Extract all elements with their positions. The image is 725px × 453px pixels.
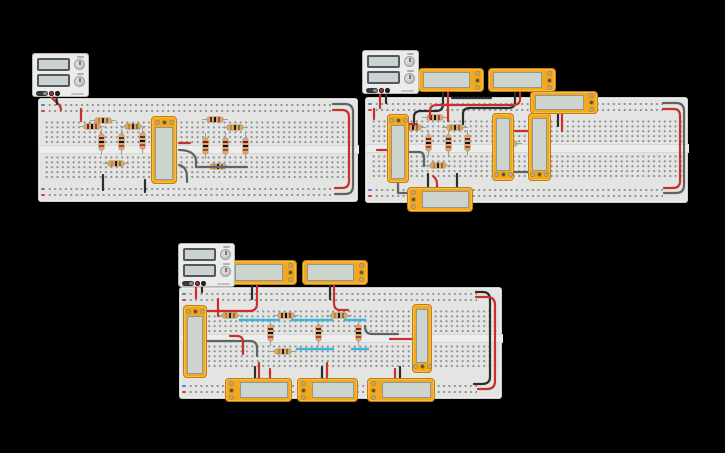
- psu-voltage-knob-label: [223, 246, 230, 248]
- psu-voltage-knob-label: [407, 53, 414, 55]
- psu-current-display: [37, 74, 70, 87]
- module-pin: [288, 270, 293, 275]
- module-pin: [301, 395, 306, 400]
- wire-gray[interactable]: [179, 150, 247, 167]
- module-pin: [186, 309, 191, 314]
- module-pin: [530, 172, 535, 177]
- module-pin: [413, 364, 418, 369]
- module-screen: [240, 382, 288, 398]
- ic-module[interactable]: [297, 378, 358, 402]
- module-pin: [169, 120, 174, 125]
- module-pin: [427, 364, 432, 369]
- psu-voltage-knob[interactable]: [220, 249, 231, 260]
- module-screen: [496, 118, 510, 171]
- psu-terminal-positive[interactable]: [49, 91, 54, 96]
- psu-terminal-positive[interactable]: [195, 281, 200, 286]
- module-pin: [288, 263, 293, 268]
- ic-module[interactable]: [302, 260, 368, 285]
- psu-terminal-negative[interactable]: [55, 91, 60, 96]
- ic-module[interactable]: [412, 304, 432, 373]
- module-screen: [423, 72, 470, 88]
- module-pin: [301, 388, 306, 393]
- module-pin: [411, 204, 416, 209]
- module-pin: [371, 388, 376, 393]
- module-pin: [288, 277, 293, 282]
- wire-red[interactable]: [663, 109, 680, 188]
- module-pin: [475, 85, 480, 90]
- module-pin: [501, 172, 506, 177]
- module-pin: [589, 100, 594, 105]
- wire-gray[interactable]: [207, 341, 257, 356]
- module-pin: [475, 78, 480, 83]
- module-pin: [589, 107, 594, 112]
- module-pin: [544, 172, 549, 177]
- module-screen: [155, 127, 173, 180]
- module-pin: [411, 190, 416, 195]
- ic-module[interactable]: [418, 68, 484, 92]
- ic-module[interactable]: [488, 68, 556, 92]
- module-screen: [312, 382, 354, 398]
- module-pin: [508, 172, 513, 177]
- psu-current-display: [183, 264, 216, 277]
- psu-current-knob[interactable]: [404, 73, 415, 84]
- module-pin: [494, 172, 499, 177]
- power-supply[interactable]: [362, 50, 419, 94]
- wire-red[interactable]: [333, 110, 349, 188]
- module-pin: [389, 118, 394, 123]
- module-pin: [359, 277, 364, 282]
- psu-current-knob[interactable]: [74, 76, 85, 87]
- ic-module[interactable]: [230, 260, 297, 285]
- psu-brand-label: [401, 90, 414, 92]
- psu-terminal-negative[interactable]: [201, 281, 206, 286]
- ic-module[interactable]: [151, 116, 177, 184]
- module-pin: [547, 85, 552, 90]
- module-screen: [391, 125, 405, 179]
- module-pin: [229, 388, 234, 393]
- ic-module[interactable]: [387, 114, 409, 183]
- psu-brand-label: [217, 283, 230, 285]
- module-pin: [359, 263, 364, 268]
- psu-power-button[interactable]: [36, 91, 48, 96]
- wire-gray[interactable]: [365, 326, 398, 334]
- wire-gray[interactable]: [409, 152, 424, 166]
- module-screen: [235, 264, 283, 281]
- module-pin: [359, 270, 364, 275]
- module-pin: [229, 381, 234, 386]
- psu-current-display: [367, 71, 400, 84]
- module-pin: [475, 71, 480, 76]
- module-screen: [532, 118, 547, 171]
- psu-current-knob-label: [407, 70, 414, 72]
- module-pin: [155, 120, 160, 125]
- wire-red[interactable]: [207, 285, 257, 311]
- module-pin: [193, 309, 198, 314]
- psu-current-knob-label: [223, 263, 230, 265]
- ic-module[interactable]: [528, 113, 551, 181]
- power-supply[interactable]: [178, 243, 235, 287]
- psu-voltage-knob[interactable]: [404, 56, 415, 67]
- psu-voltage-knob[interactable]: [74, 59, 85, 70]
- psu-voltage-knob-label: [77, 56, 84, 58]
- psu-voltage-display: [183, 248, 216, 261]
- module-screen: [493, 72, 542, 88]
- ic-module[interactable]: [407, 187, 473, 212]
- module-pin: [301, 381, 306, 386]
- psu-voltage-display: [367, 55, 400, 68]
- psu-terminal-positive[interactable]: [379, 88, 384, 93]
- module-pin: [547, 71, 552, 76]
- module-screen: [422, 191, 469, 208]
- ic-module[interactable]: [225, 378, 292, 402]
- wire-red[interactable]: [230, 336, 243, 354]
- module-screen: [535, 95, 584, 110]
- module-pin: [537, 172, 542, 177]
- psu-voltage-display: [37, 58, 70, 71]
- ic-module[interactable]: [367, 378, 435, 402]
- module-pin: [229, 395, 234, 400]
- psu-brand-label: [71, 93, 84, 95]
- module-pin: [411, 197, 416, 202]
- psu-current-knob[interactable]: [220, 266, 231, 277]
- wire-gray[interactable]: [179, 165, 187, 182]
- module-screen: [382, 382, 431, 398]
- module-pin: [403, 118, 408, 123]
- module-pin: [371, 395, 376, 400]
- module-pin: [396, 118, 401, 123]
- module-pin: [200, 309, 205, 314]
- module-screen: [307, 264, 354, 281]
- module-pin: [371, 381, 376, 386]
- circuit-canvas: [0, 0, 725, 453]
- psu-power-button[interactable]: [182, 281, 194, 286]
- module-screen: [416, 309, 428, 363]
- power-supply[interactable]: [32, 53, 89, 97]
- module-pin: [547, 78, 552, 83]
- module-screen: [187, 316, 203, 374]
- module-pin: [162, 120, 167, 125]
- ic-module[interactable]: [530, 91, 598, 114]
- psu-terminal-negative[interactable]: [385, 88, 390, 93]
- ic-module[interactable]: [183, 305, 207, 378]
- wire-red[interactable]: [334, 285, 348, 310]
- psu-power-button[interactable]: [366, 88, 378, 93]
- wire-red[interactable]: [476, 297, 495, 389]
- psu-current-knob-label: [77, 73, 84, 75]
- ic-module[interactable]: [492, 113, 514, 181]
- module-pin: [420, 364, 425, 369]
- wire-black[interactable]: [474, 292, 490, 384]
- module-pin: [589, 93, 594, 98]
- wire-black[interactable]: [414, 92, 443, 125]
